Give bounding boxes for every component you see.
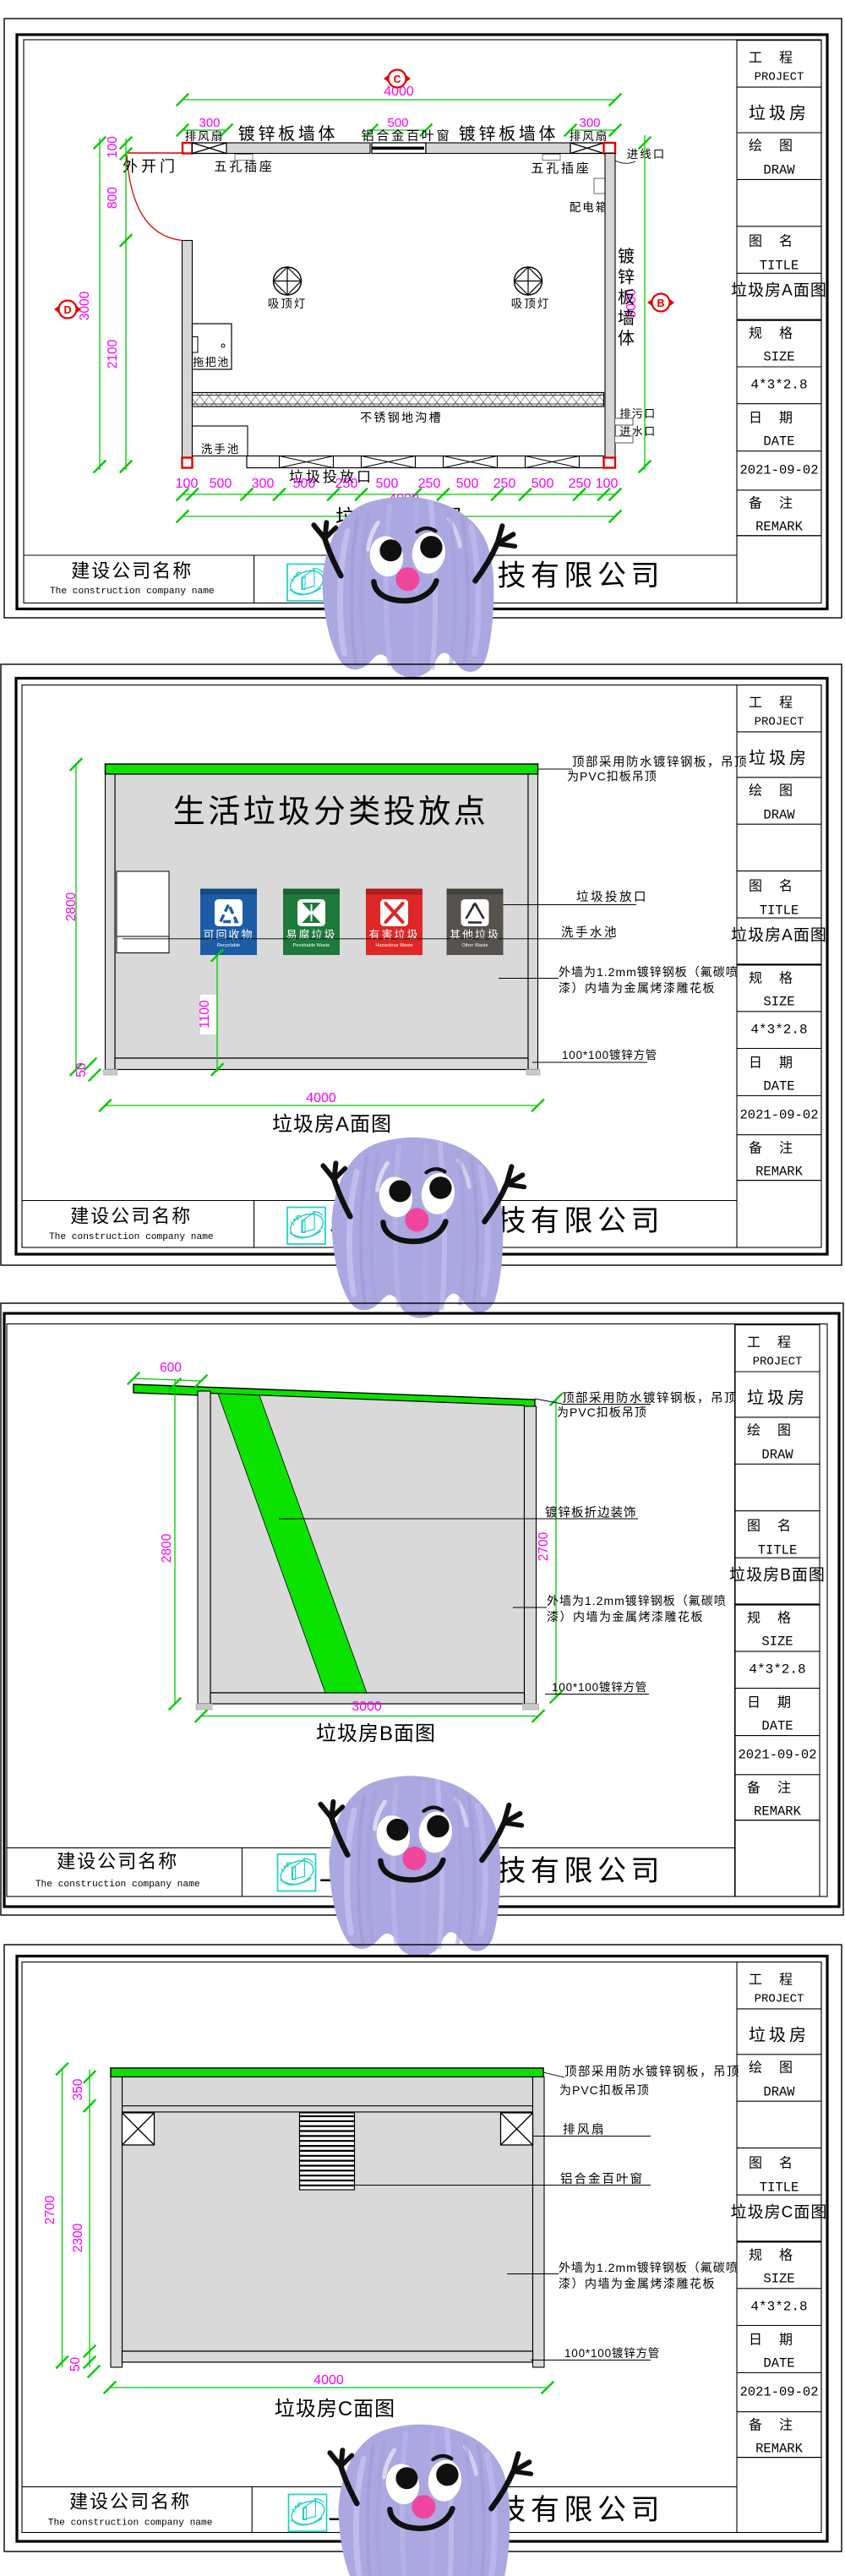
svg-text:垃圾房A面图: 垃圾房A面图 [731,281,827,300]
svg-text:科技有限公司: 科技有限公司 [464,560,664,592]
svg-text:垃圾投放口: 垃圾投放口 [576,890,648,904]
svg-text:漆）内墙为金属烤漆雕花板: 漆）内墙为金属烤漆雕花板 [559,981,716,995]
svg-text:垃圾房A面图: 垃圾房A面图 [272,1113,392,1136]
svg-text:The construction company name: The construction company name [35,1880,200,1890]
svg-text:350: 350 [71,2078,85,2100]
svg-text:镀锌板墙体: 镀锌板墙体 [238,124,339,144]
svg-text:生活垃圾分类投放点: 生活垃圾分类投放点 [173,794,489,830]
svg-text:为PVC扣板吊顶: 为PVC扣板吊顶 [559,2083,650,2097]
svg-text:进线口: 进线口 [627,148,667,161]
svg-text:墙: 墙 [618,308,635,328]
svg-text:B: B [657,297,664,309]
svg-text:500: 500 [387,116,408,130]
svg-text:50: 50 [68,2357,83,2372]
svg-text:500: 500 [532,477,554,491]
svg-text:The construction company name: The construction company name [48,2519,213,2529]
svg-text:The construction company name: The construction company name [49,1232,214,1242]
svg-text:250: 250 [569,477,591,491]
svg-text:外墙为1.2mm镀锌钢板（氟碳喷: 外墙为1.2mm镀锌钢板（氟碳喷 [559,965,739,979]
svg-text:吸顶灯: 吸顶灯 [511,297,551,310]
svg-text:100*100镀锌方管: 100*100镀锌方管 [564,2346,660,2360]
svg-text:500: 500 [293,477,316,491]
svg-text:锌: 锌 [618,267,635,287]
svg-text:镀锌板折边装饰: 镀锌板折边装饰 [545,1505,637,1520]
svg-text:垃圾房C面图: 垃圾房C面图 [275,2398,395,2420]
svg-text:垃圾房B面图: 垃圾房B面图 [729,1566,826,1585]
svg-text:排污口: 排污口 [619,407,657,420]
svg-text:2100: 2100 [106,339,120,368]
svg-text:排风扇: 排风扇 [563,2123,606,2137]
svg-text:500: 500 [210,477,232,491]
svg-text:建设公司名称: 建设公司名称 [69,2491,191,2513]
svg-text:600: 600 [160,1361,182,1375]
svg-text:顶部采用防水镀锌钢板，吊顶: 顶部采用防水镀锌钢板，吊顶 [572,755,748,770]
svg-text:拖把池: 拖把池 [193,356,230,368]
svg-text:进水口: 进水口 [619,425,657,438]
svg-text:500: 500 [376,477,399,491]
svg-text:100*100镀锌方管: 100*100镀锌方管 [562,1048,657,1062]
svg-text:3000: 3000 [352,1700,382,1714]
svg-text:Hazardous Waste: Hazardous Waste [375,943,412,948]
svg-text:体: 体 [618,329,635,348]
svg-text:漆）内墙为金属烤漆雕花板: 漆）内墙为金属烤漆雕花板 [547,1610,704,1624]
svg-text:五孔插座: 五孔插座 [531,161,591,176]
svg-text:The construction company name: The construction company name [50,587,215,597]
svg-text:300: 300 [252,477,275,491]
svg-text:建设公司名称: 建设公司名称 [70,1206,192,1227]
svg-text:300: 300 [199,116,220,130]
svg-text:外墙为1.2mm镀锌钢板（氟碳喷: 外墙为1.2mm镀锌钢板（氟碳喷 [547,1594,727,1607]
svg-text:五孔插座: 五孔插座 [214,160,274,174]
svg-text:2800: 2800 [64,892,79,921]
svg-text:镀: 镀 [618,247,635,266]
svg-text:300: 300 [579,116,600,130]
svg-text:不锈钢地沟槽: 不锈钢地沟槽 [360,411,443,424]
svg-text:外开门: 外开门 [123,158,178,175]
svg-text:铝合金百叶窗: 铝合金百叶窗 [362,128,452,144]
svg-text:配电箱: 配电箱 [570,201,609,214]
svg-text:500: 500 [456,477,479,491]
svg-text:4000: 4000 [313,2373,344,2388]
svg-text:2300: 2300 [71,2223,85,2252]
svg-text:Perishable Waste: Perishable Waste [293,943,330,948]
svg-text:洗手池: 洗手池 [201,443,241,456]
svg-text:镀锌板墙体: 镀锌板墙体 [459,124,559,144]
svg-text:垃圾房C面图: 垃圾房C面图 [731,2203,828,2222]
svg-text:Other Waste: Other Waste [461,943,488,948]
svg-text:吸顶灯: 吸顶灯 [268,297,308,310]
svg-text:4000: 4000 [306,1091,336,1105]
svg-text:洗手水池: 洗手水池 [561,925,619,940]
svg-text:顶部采用防水镀锌钢板，吊顶: 顶部采用防水镀锌钢板，吊顶 [562,1390,738,1405]
svg-text:50: 50 [74,1062,89,1078]
svg-text:C: C [393,74,401,85]
svg-text:垃圾房B面图: 垃圾房B面图 [316,1722,436,1745]
svg-text:为PVC扣板吊顶: 为PVC扣板吊顶 [567,770,657,783]
svg-text:建设公司名称: 建设公司名称 [57,1851,178,1872]
svg-text:250: 250 [493,477,516,491]
svg-text:顶部采用防水镀锌钢板，吊顶: 顶部采用防水镀锌钢板，吊顶 [564,2064,740,2079]
svg-text:D: D [63,304,71,316]
svg-text:2700: 2700 [537,1531,551,1561]
svg-text:排风扇: 排风扇 [570,130,609,143]
svg-text:1100: 1100 [198,1000,212,1029]
svg-text:100: 100 [596,477,619,491]
svg-text:800: 800 [106,187,120,209]
svg-text:3000: 3000 [78,291,92,320]
svg-text:建设公司名称: 建设公司名称 [71,560,193,581]
svg-text:铝合金百叶窗: 铝合金百叶窗 [560,2171,644,2186]
svg-text:100*100镀锌方管: 100*100镀锌方管 [552,1680,647,1694]
svg-text:漆）内墙为金属烤漆雕花板: 漆）内墙为金属烤漆雕花板 [559,2277,716,2290]
svg-text:外墙为1.2mm镀锌钢板（氟碳喷: 外墙为1.2mm镀锌钢板（氟碳喷 [559,2261,739,2274]
svg-text:Recyclable: Recyclable [217,943,240,948]
svg-text:板: 板 [618,288,635,308]
svg-text:排风扇: 排风扇 [185,130,225,143]
svg-text:2700: 2700 [43,2195,57,2224]
svg-text:2800: 2800 [160,1533,174,1563]
svg-text:100: 100 [106,136,120,158]
svg-text:为PVC扣板吊顶: 为PVC扣板吊顶 [557,1405,647,1419]
svg-text:垃圾房A面图: 垃圾房A面图 [731,926,827,945]
